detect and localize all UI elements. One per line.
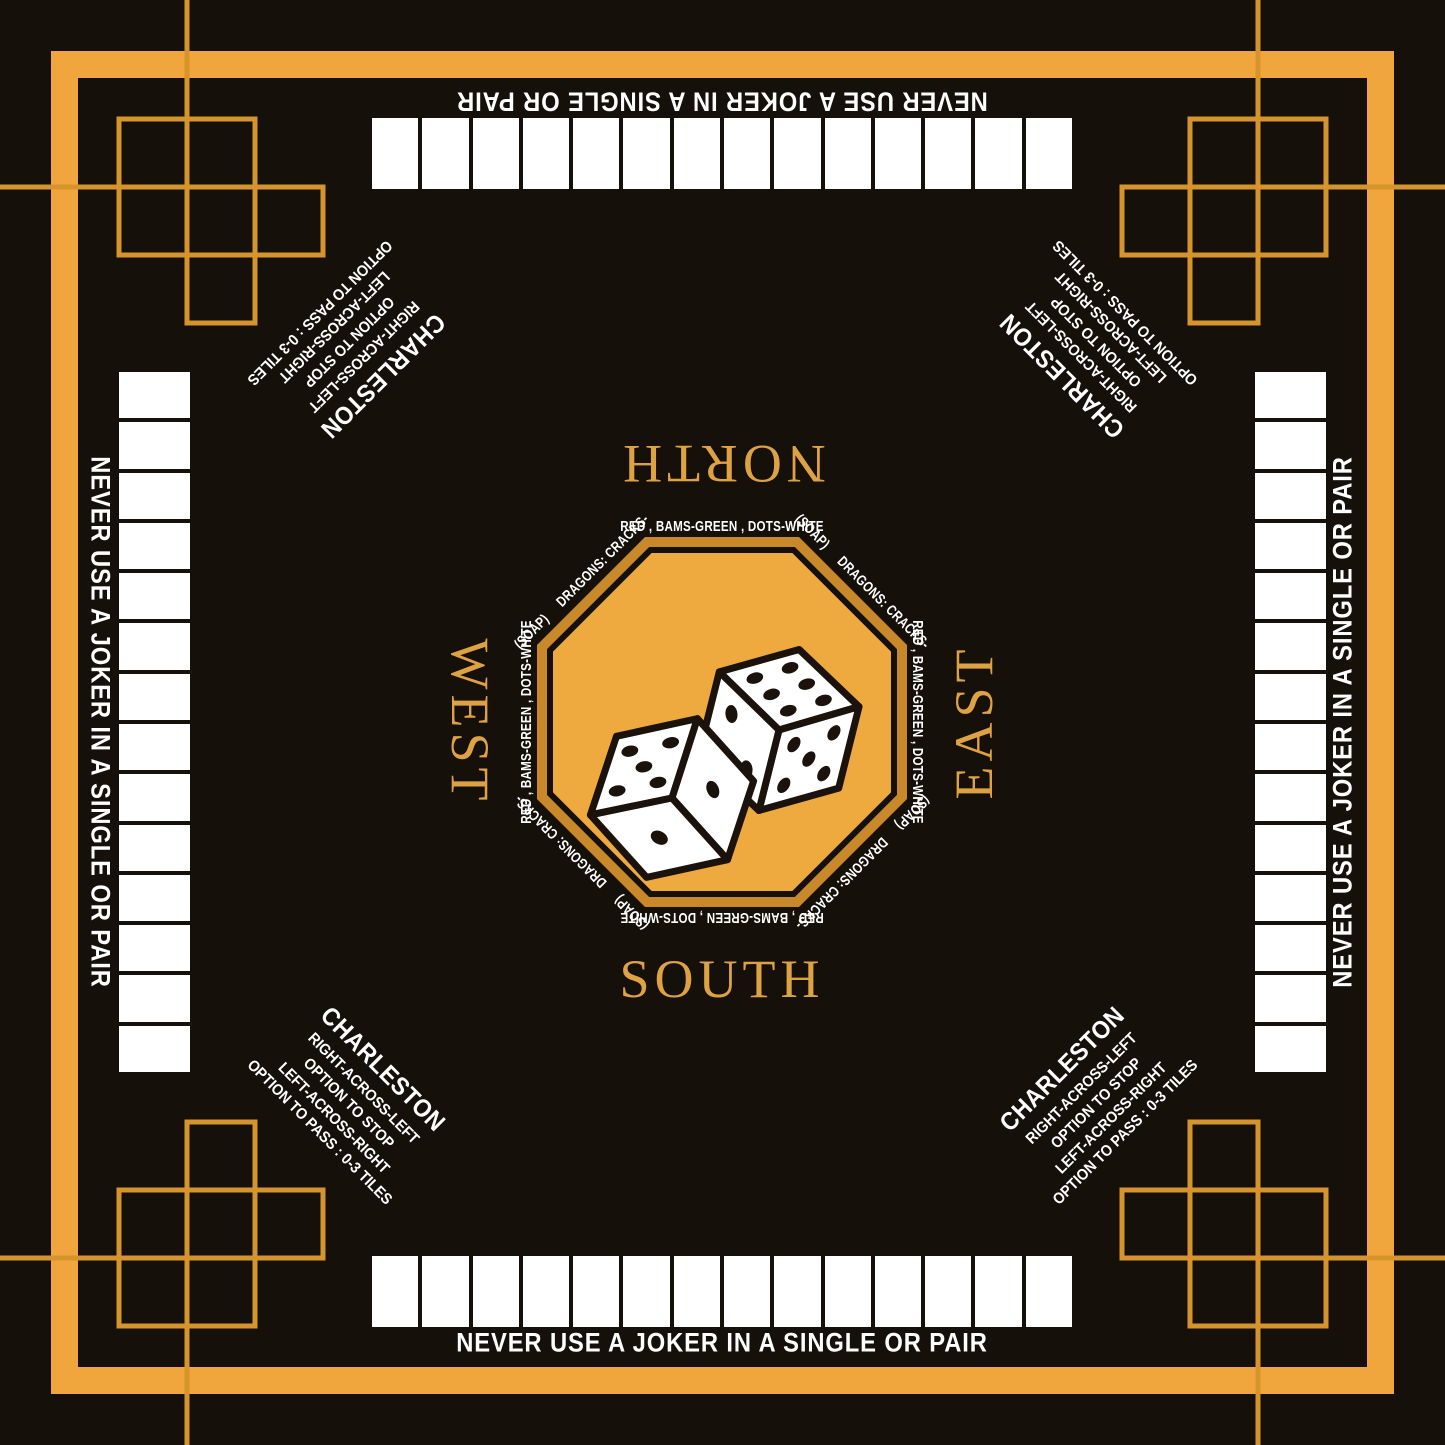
joker-warning-north: NEVER USE A JOKER IN A SINGLE OR PAIR bbox=[456, 86, 988, 117]
tile-slot bbox=[573, 1256, 619, 1327]
tile-slot bbox=[119, 372, 190, 418]
tile-slot bbox=[774, 118, 820, 189]
joker-warning-east: NEVER USE A JOKER IN A SINGLE OR PAIR bbox=[1328, 456, 1359, 988]
corner-pattern-top-left bbox=[119, 119, 323, 323]
tile-slot bbox=[422, 1256, 468, 1327]
tile-slot bbox=[119, 473, 190, 519]
tile-rack-north bbox=[372, 118, 1072, 189]
tile-slot bbox=[119, 422, 190, 468]
tile-slot bbox=[1255, 422, 1326, 468]
tile-slot bbox=[119, 523, 190, 569]
tile-slot bbox=[1255, 523, 1326, 569]
tile-slot bbox=[875, 118, 921, 189]
tile-rack-west bbox=[119, 372, 190, 1072]
tile-slot bbox=[1255, 724, 1326, 770]
tile-slot bbox=[674, 118, 720, 189]
tile-slot bbox=[975, 1256, 1021, 1327]
tile-slot bbox=[1255, 674, 1326, 720]
tile-rack-east bbox=[1255, 372, 1326, 1072]
compass-west: WEST bbox=[439, 639, 501, 806]
tile-slot bbox=[523, 118, 569, 189]
tile-slot bbox=[623, 118, 669, 189]
tile-slot bbox=[119, 925, 190, 971]
compass-south: SOUTH bbox=[619, 948, 824, 1010]
tile-slot bbox=[875, 1256, 921, 1327]
tile-slot bbox=[119, 825, 190, 871]
tile-slot bbox=[975, 118, 1021, 189]
tile-slot bbox=[1255, 623, 1326, 669]
tile-slot bbox=[1255, 774, 1326, 820]
tile-slot bbox=[372, 1256, 418, 1327]
tile-slot bbox=[119, 573, 190, 619]
tile-slot bbox=[422, 118, 468, 189]
tile-slot bbox=[724, 1256, 770, 1327]
corner-pattern-bottom-left bbox=[119, 1122, 323, 1326]
tile-slot bbox=[523, 1256, 569, 1327]
tile-slot bbox=[119, 623, 190, 669]
compass-east: EAST bbox=[943, 645, 1005, 800]
tile-slot bbox=[774, 1256, 820, 1327]
tile-slot bbox=[1255, 1026, 1326, 1072]
tile-slot bbox=[1255, 473, 1326, 519]
tile-rack-south bbox=[372, 1256, 1072, 1327]
tile-slot bbox=[372, 118, 418, 189]
tile-slot bbox=[1255, 573, 1326, 619]
tile-slot bbox=[119, 1026, 190, 1072]
compass-north: NORTH bbox=[618, 433, 826, 495]
tile-slot bbox=[925, 118, 971, 189]
tile-slot bbox=[573, 118, 619, 189]
tile-slot bbox=[119, 975, 190, 1021]
tile-slot bbox=[119, 774, 190, 820]
tile-slot bbox=[119, 875, 190, 921]
joker-warning-south: NEVER USE A JOKER IN A SINGLE OR PAIR bbox=[456, 1328, 988, 1359]
tile-slot bbox=[674, 1256, 720, 1327]
tile-slot bbox=[473, 1256, 519, 1327]
tile-slot bbox=[724, 118, 770, 189]
tile-slot bbox=[925, 1256, 971, 1327]
tile-slot bbox=[119, 724, 190, 770]
tile-slot bbox=[1255, 825, 1326, 871]
joker-warning-west: NEVER USE A JOKER IN A SINGLE OR PAIR bbox=[85, 456, 116, 988]
tile-slot bbox=[825, 1256, 871, 1327]
corner-pattern-top-right bbox=[1122, 119, 1326, 323]
center-octagon bbox=[502, 502, 942, 942]
tile-slot bbox=[1255, 875, 1326, 921]
tile-slot bbox=[1255, 925, 1326, 971]
tile-slot bbox=[119, 674, 190, 720]
tile-slot bbox=[1026, 118, 1072, 189]
corner-pattern-bottom-right bbox=[1122, 1122, 1326, 1326]
tile-slot bbox=[1026, 1256, 1072, 1327]
tile-slot bbox=[825, 118, 871, 189]
tile-slot bbox=[473, 118, 519, 189]
tile-slot bbox=[1255, 372, 1326, 418]
tile-slot bbox=[623, 1256, 669, 1327]
tile-slot bbox=[1255, 975, 1326, 1021]
mahjong-mat: NEVER USE A JOKER IN A SINGLE OR PAIR NE… bbox=[0, 0, 1445, 1445]
